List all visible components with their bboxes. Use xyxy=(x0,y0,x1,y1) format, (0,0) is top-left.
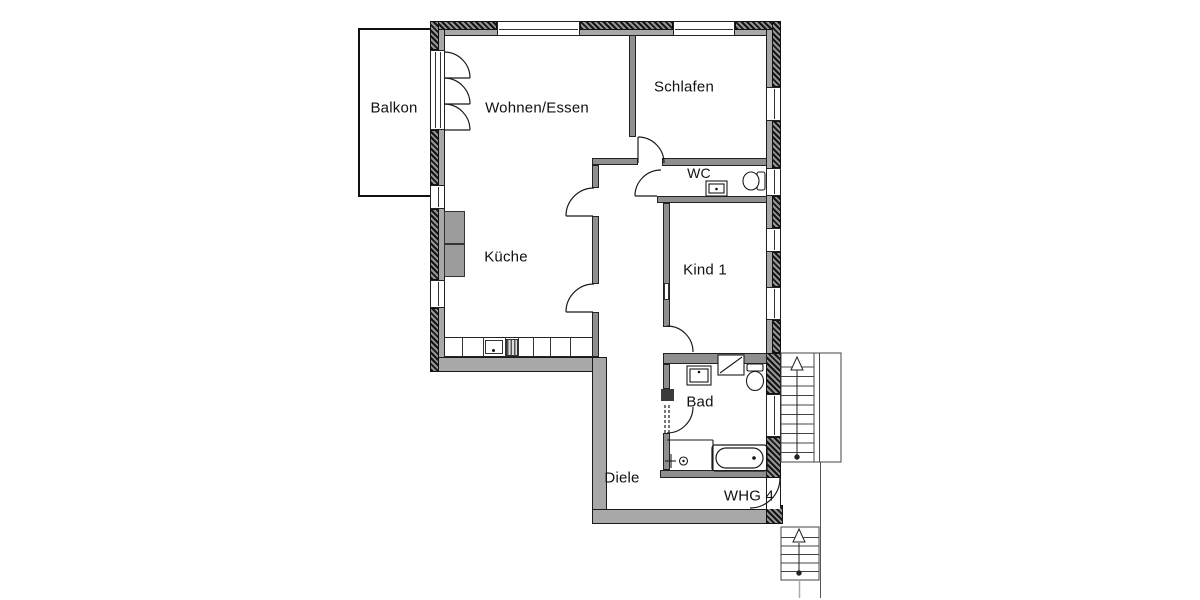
floor-plan-canvas: Balkon Wohnen/Essen Schlafen WC Küche Ki… xyxy=(0,0,1200,600)
room-label-kueche: Küche xyxy=(484,249,528,266)
apartment-label: WHG 4 xyxy=(724,488,774,505)
washer-niche-icon xyxy=(718,355,744,375)
wc-toilet-icon xyxy=(743,172,765,190)
hall-living-door-swing-icon xyxy=(566,188,594,216)
stairs-up-arrow-icon xyxy=(791,357,803,459)
shower-icon xyxy=(665,440,713,470)
bathtub-icon xyxy=(712,445,767,471)
room-label-kind-1: Kind 1 xyxy=(683,262,727,279)
room-label-diele: Diele xyxy=(604,470,639,487)
child-room-door-swing-icon xyxy=(667,326,693,352)
hall-kitchen-door-swing-icon xyxy=(566,284,594,312)
bath-toilet-icon xyxy=(747,364,764,391)
room-label-wohnen-essen: Wohnen/Essen xyxy=(485,100,589,117)
bath-sink-icon xyxy=(687,366,711,385)
bedroom-door-swing-icon xyxy=(638,137,664,163)
plan-vector-layer xyxy=(0,0,1200,600)
balcony-door-swing-icon xyxy=(444,52,470,130)
room-label-schlafen: Schlafen xyxy=(654,79,714,96)
room-label-balkon: Balkon xyxy=(370,100,417,117)
stair-treads xyxy=(781,538,819,572)
room-label-bad: Bad xyxy=(686,394,713,411)
staircase-lower xyxy=(781,527,819,580)
room-label-wc: WC xyxy=(687,165,711,181)
wc-door-swing-icon xyxy=(635,170,661,196)
staircase-upper xyxy=(781,353,841,462)
stairs-up-arrow-icon xyxy=(793,529,805,575)
wc-sink-icon xyxy=(706,181,727,196)
